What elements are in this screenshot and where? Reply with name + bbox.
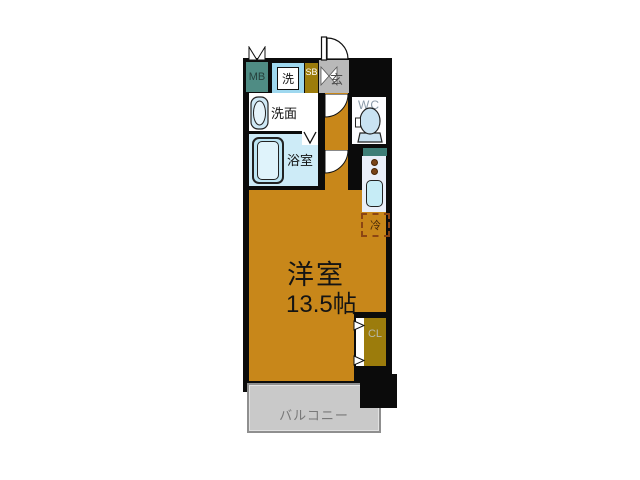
meter-box: MB: [246, 62, 268, 92]
toilet-icon: [355, 104, 385, 144]
kitchen-sink-icon: [366, 180, 383, 207]
shoe-box: SB: [305, 63, 318, 93]
washing-machine: 洗: [277, 67, 299, 90]
entrance-label: 玄: [330, 69, 346, 85]
hall-door-bottom-icon: [325, 150, 350, 179]
closet: CL: [364, 318, 386, 366]
bath-door-icon: [302, 131, 318, 145]
bathtub-inner: [257, 141, 279, 180]
sink-icon: [250, 96, 269, 130]
stove-burner-icon: [371, 159, 378, 166]
refrigerator-label: 冷: [370, 217, 381, 233]
closet-door-arrow-icon: [353, 354, 365, 367]
front-door-arc-icon: [320, 35, 350, 62]
closet-door-arrow-icon: [353, 319, 365, 332]
washroom-label: 洗面: [271, 103, 297, 122]
kitchen-counter-bar: [363, 148, 387, 156]
bathroom-label: 浴室: [287, 150, 313, 169]
stove-burner-icon: [371, 168, 378, 175]
corner-pillar: [360, 374, 397, 408]
main-room-size: 13.5帖: [286, 284, 357, 319]
washer-label: 洗: [282, 70, 294, 87]
meter-box-door-icon: [247, 46, 267, 62]
refrigerator-space: 冷: [361, 213, 390, 237]
hall-door-top-icon: [325, 94, 350, 120]
meter-box-label: MB: [249, 71, 266, 83]
floor-plan-canvas: MB 洗 SB 玄 洗面 浴室: [0, 0, 640, 480]
